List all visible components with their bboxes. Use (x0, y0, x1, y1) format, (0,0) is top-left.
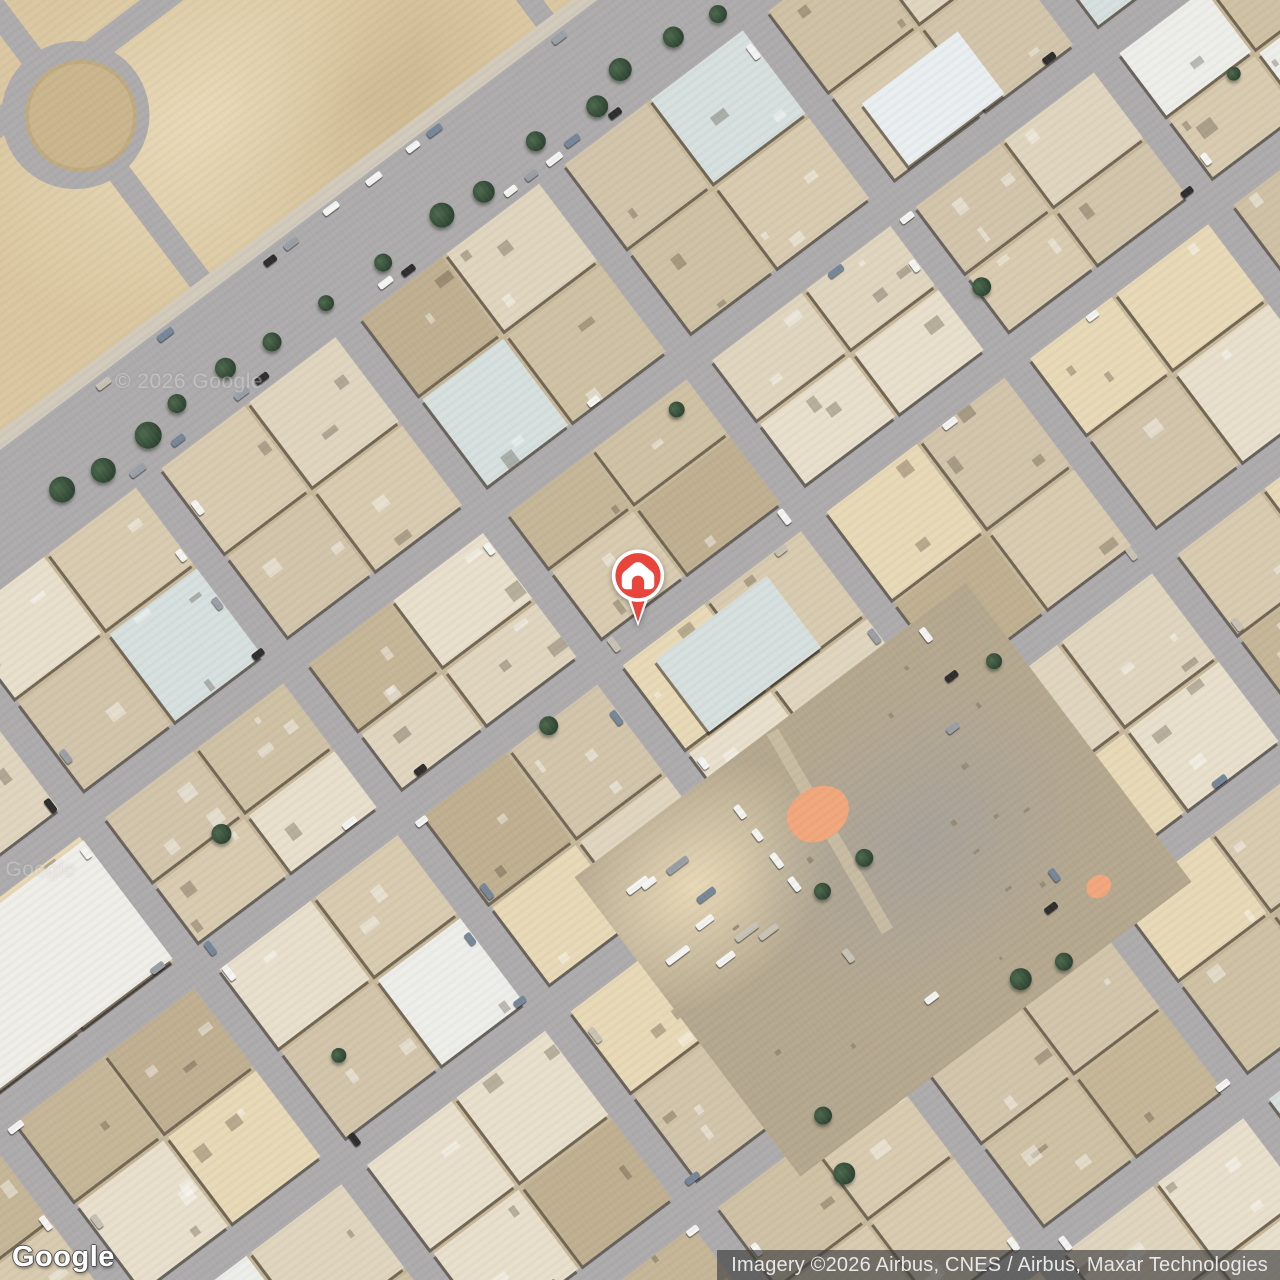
rooftop-detail (951, 197, 970, 216)
rooftop-detail (497, 239, 515, 256)
rooftop-detail (662, 1110, 677, 1124)
google-watermark: © 2026 Google (0, 858, 76, 882)
rooftop-detail (1066, 365, 1077, 376)
rooftop-detail (872, 287, 888, 303)
rooftop-detail (345, 1068, 360, 1084)
rooftop-detail (189, 1225, 201, 1237)
rooftop-detail (1000, 172, 1016, 187)
car (503, 184, 518, 198)
tree (315, 292, 337, 314)
car (170, 433, 186, 448)
rooftop-detail (257, 741, 275, 758)
rooftop-detail (1034, 1048, 1053, 1065)
car (777, 508, 793, 526)
rooftop-detail (923, 315, 944, 336)
rooftop-detail (858, 259, 866, 267)
rooftop-detail (257, 440, 272, 456)
rooftop-detail (321, 424, 339, 440)
google-logo[interactable]: Google (12, 1241, 115, 1274)
tree (164, 390, 191, 417)
rooftop-detail (1249, 1199, 1263, 1213)
tree (522, 127, 550, 155)
rooftop-detail (105, 702, 126, 723)
rooftop-detail (30, 590, 46, 604)
rooftop-detail (1103, 978, 1111, 986)
rooftop-detail (0, 768, 13, 786)
rooftop-detail (1181, 657, 1199, 673)
rooftop-detail (1187, 242, 1200, 255)
tree (705, 1, 730, 26)
rooftop-detail (502, 293, 516, 308)
rooftop-detail (508, 1205, 520, 1218)
rooftop-detail (100, 1120, 110, 1131)
rooftop-detail (820, 1196, 835, 1210)
rooftop-detail (804, 170, 819, 184)
rooftop-detail (704, 535, 717, 548)
tree (259, 329, 286, 356)
rooftop-detail (504, 580, 526, 602)
home-pin-graphic (609, 545, 667, 628)
rooftop-detail (197, 1021, 213, 1036)
rooftop-detail (394, 529, 413, 546)
place-marker[interactable] (609, 545, 667, 628)
car (607, 106, 622, 120)
rooftop-detail (651, 438, 664, 450)
rooftop-detail (1188, 752, 1207, 770)
car (524, 168, 539, 182)
car (377, 275, 394, 290)
tree (468, 176, 499, 207)
rooftop-detail (558, 952, 571, 964)
rooftop-detail (513, 617, 529, 631)
rooftop-detail (547, 637, 569, 657)
car (1215, 1078, 1231, 1093)
map-viewport[interactable]: © 2026 Google © 2026 Google Google Image… (0, 0, 1280, 1280)
rooftop-detail (133, 608, 152, 624)
rooftop-detail (869, 1138, 892, 1160)
rooftop-detail (772, 109, 787, 123)
rooftop-detail (534, 759, 546, 773)
rooftop-detail (585, 748, 599, 762)
rooftop-detail (544, 1044, 561, 1061)
car (563, 133, 581, 149)
rooftop-detail (392, 726, 411, 744)
rooftop-detail (203, 679, 215, 692)
rooftop-detail (578, 316, 596, 332)
rooftop-detail (0, 1180, 18, 1199)
rooftop-detail (1074, 1153, 1092, 1170)
rooftop-detail (1221, 349, 1232, 360)
rooftop-detail (1165, 1181, 1178, 1193)
rooftop-detail (180, 880, 198, 898)
rooftop-detail (1144, 1111, 1155, 1122)
car (95, 376, 112, 391)
car (606, 636, 621, 653)
rooftop-detail (284, 822, 303, 841)
rooftop-detail (283, 719, 299, 735)
rooftop-detail (806, 395, 823, 413)
rooftop-detail (193, 1143, 213, 1163)
rooftop-detail (700, 1124, 715, 1140)
rooftop-detail (1271, 59, 1279, 68)
rooftop-detail (1244, 909, 1257, 923)
car (899, 210, 915, 225)
rooftop-detail (380, 646, 394, 661)
attribution-text: Imagery ©2026 Airbus, CNES / Airbus, Max… (731, 1254, 1268, 1277)
rooftop-detail (399, 1038, 417, 1056)
car (203, 940, 218, 956)
rooftop-detail (1206, 963, 1226, 983)
rooftop-detail (897, 18, 907, 28)
car (1125, 546, 1139, 561)
rooftop-detail (370, 884, 389, 903)
rooftop-detail (254, 716, 262, 725)
car (1180, 185, 1195, 198)
rooftop-detail (496, 813, 508, 825)
rooftop-detail (1151, 725, 1172, 745)
rooftop-detail (896, 265, 912, 280)
google-watermark: © 2026 Google (115, 370, 263, 394)
car (414, 815, 429, 828)
rooftop-detail (262, 557, 283, 578)
rooftop-detail (654, 691, 662, 699)
tree (371, 250, 396, 275)
rooftop-detail (896, 459, 916, 479)
rooftop-detail (946, 456, 964, 475)
car (545, 151, 564, 167)
tree (604, 53, 636, 85)
rooftop-detail (1273, 564, 1280, 575)
car (684, 1171, 701, 1186)
rooftop-detail (1182, 121, 1192, 132)
rooftop-detail (1099, 537, 1119, 556)
rooftop-detail (1195, 117, 1218, 140)
rooftop-detail (650, 1023, 666, 1039)
rooftop-detail (716, 299, 726, 308)
rooftop-detail (670, 253, 687, 271)
rooftop-detail (769, 372, 783, 385)
rooftop-detail (1189, 55, 1204, 69)
rooftop-detail (183, 1060, 198, 1073)
rooftop-detail (489, 1271, 510, 1280)
rooftop-detail (346, 1229, 355, 1238)
rooftop-detail (494, 865, 507, 878)
rooftop-detail (127, 517, 144, 533)
rooftop-detail (334, 374, 350, 390)
rooftop-detail (177, 782, 199, 804)
building (251, 1184, 404, 1280)
rooftop-detail (441, 1140, 460, 1157)
rooftop-detail (1024, 128, 1040, 144)
rooftop-detail (1225, 1156, 1243, 1173)
car (129, 462, 148, 478)
rooftop-detail (977, 227, 991, 243)
rooftop-detail (498, 1000, 511, 1014)
rooftop-detail (957, 404, 977, 423)
rooftop-detail (1248, 192, 1264, 208)
rooftop-detail (482, 1073, 504, 1094)
rooftop-detail (788, 230, 805, 246)
rooftop-detail (330, 541, 345, 555)
rooftop-detail (263, 950, 278, 964)
car (348, 1132, 362, 1147)
rooftop-detail (500, 449, 520, 469)
tree (129, 416, 167, 454)
rooftop-detail (783, 309, 803, 328)
rooftop-detail (434, 270, 454, 289)
rooftop-detail (425, 313, 436, 325)
rooftop-detail (499, 659, 512, 672)
car (283, 236, 300, 251)
rooftop-detail (1143, 418, 1165, 439)
rooftop-detail (1047, 237, 1062, 254)
rooftop-detail (693, 1104, 704, 1115)
rooftop-detail (460, 249, 473, 262)
rooftop-detail (825, 401, 842, 418)
building (1178, 492, 1280, 634)
rooftop-detail (619, 1165, 633, 1181)
car (400, 263, 416, 278)
tree (44, 471, 80, 507)
rooftop-detail (1276, 645, 1280, 666)
attribution-bar: Imagery ©2026 Airbus, CNES / Airbus, Max… (717, 1250, 1280, 1280)
rooftop-detail (797, 4, 812, 19)
tree (582, 91, 613, 122)
rooftop-detail (190, 919, 204, 933)
rooftop-detail (915, 537, 931, 553)
rooftop-detail (611, 504, 621, 514)
rooftop-detail (1233, 840, 1247, 853)
rooftop-detail (371, 494, 390, 513)
rooftop-detail (1104, 371, 1115, 383)
rooftop-detail (359, 915, 380, 934)
rooftop-detail (163, 838, 180, 856)
rooftop-detail (189, 592, 202, 604)
rooftop-detail (1120, 661, 1135, 675)
rooftop-detail (511, 435, 525, 448)
rooftop-detail (1170, 633, 1179, 642)
rooftop-detail (627, 208, 638, 220)
tree (86, 453, 121, 488)
rooftop-detail (1028, 47, 1040, 58)
tree (424, 198, 459, 233)
rooftop-detail (651, 1255, 659, 1264)
rooftop-detail (1032, 453, 1046, 467)
rooftop-detail (760, 231, 769, 240)
rooftop-detail (1003, 1095, 1018, 1111)
rooftop-detail (464, 547, 483, 563)
rooftop-detail (1186, 678, 1205, 695)
rooftop-detail (1078, 202, 1095, 220)
rooftop-detail (609, 780, 623, 794)
car (263, 254, 278, 268)
rooftop-detail (1276, 617, 1280, 637)
rooftop-detail (145, 1064, 159, 1078)
satellite-imagery-layer (0, 0, 1280, 1280)
tree (659, 22, 688, 51)
building (1038, 0, 1180, 25)
rooftop-detail (710, 108, 730, 126)
rooftop-detail (996, 254, 1010, 267)
